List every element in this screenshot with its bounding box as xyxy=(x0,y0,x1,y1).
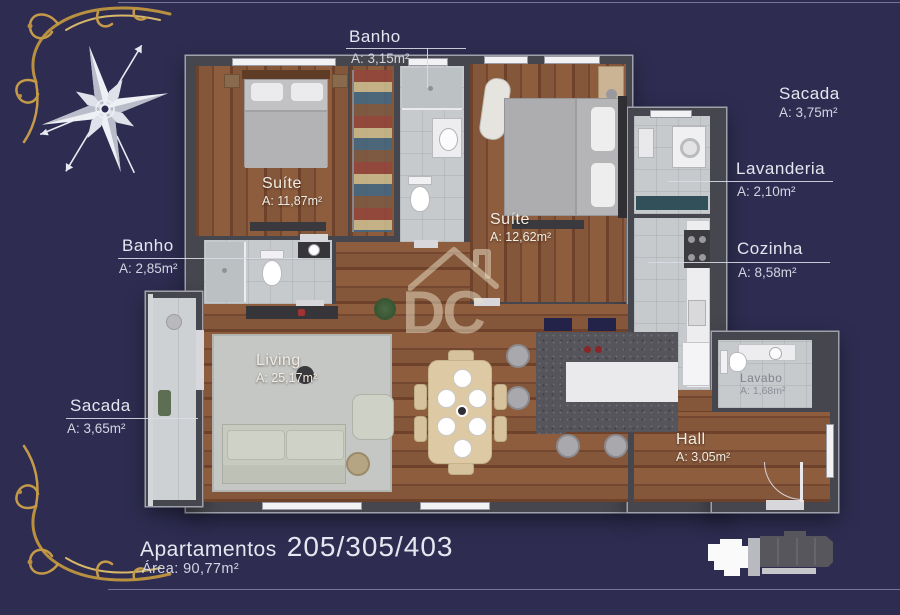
banho-top-sink-basin xyxy=(439,128,458,151)
living-sofa xyxy=(222,424,346,484)
living-tv-console xyxy=(246,306,338,319)
sofa-back xyxy=(223,465,345,483)
label-lavanderia-area: A: 2,10m² xyxy=(737,185,796,200)
entry-door-gap xyxy=(766,500,804,510)
label-hall-name: Hall xyxy=(676,432,730,449)
label-sacada-left-leader xyxy=(66,418,198,419)
sofa-cushion-2 xyxy=(286,430,344,460)
bottom-frame-line xyxy=(108,589,900,590)
label-lavanderia-leader xyxy=(668,181,833,182)
suite-1-pillow-left xyxy=(251,83,283,101)
watermark-text: DC xyxy=(402,278,483,347)
suite-1-bed-headboard xyxy=(242,70,330,79)
banho-left-basin xyxy=(308,244,320,256)
label-sacada-top: Sacada A: 3,75m² xyxy=(779,85,840,121)
lavanderia-washer-door xyxy=(680,138,700,158)
dining-chair-right-1 xyxy=(494,384,507,410)
lavabo-basin xyxy=(769,347,782,360)
label-suite-2: Suíte A: 12,62m² xyxy=(490,212,551,245)
banho-top-toilet-tank xyxy=(408,176,432,185)
footer-building-label: Apartamentos xyxy=(140,538,277,562)
balcony-planter xyxy=(158,390,171,416)
stove-burner-2 xyxy=(699,236,706,243)
kitchen-island-inner-counter xyxy=(566,362,678,402)
island-mat-1 xyxy=(544,318,572,331)
label-cozinha-leader xyxy=(648,262,830,263)
label-hall-area: A: 3,05m² xyxy=(676,451,730,465)
plate-4 xyxy=(437,417,456,436)
lavanderia-washer xyxy=(672,126,706,168)
label-sacada-top-name: Sacada xyxy=(779,85,840,103)
label-living-area: A: 25,17m² xyxy=(256,372,317,386)
center-bowl xyxy=(456,405,468,417)
floor-plan-canvas: DC Banho A: 3,15m² Sacada A: 3,75m² Lava… xyxy=(0,0,900,615)
label-sacada-left-name: Sacada xyxy=(70,397,131,415)
label-suite-1-name: Suíte xyxy=(262,176,322,193)
suite-2-bed-headboard xyxy=(618,96,627,218)
living-plant xyxy=(374,298,396,320)
label-banho-top: Banho xyxy=(349,28,401,46)
entry-door-leaf xyxy=(800,462,803,502)
hall-window xyxy=(826,424,834,478)
dining-chair-left-2 xyxy=(414,416,427,442)
label-lavabo-name: Lavabo xyxy=(740,372,786,385)
label-suite-2-name: Suíte xyxy=(490,212,551,229)
living-armchair xyxy=(352,394,394,440)
label-sacada-left-area: A: 3,65m² xyxy=(67,422,126,437)
bar-stool-2 xyxy=(506,386,530,410)
label-banho-left-name: Banho xyxy=(122,237,174,255)
suite-1-wardrobe xyxy=(352,70,392,232)
label-living-name: Living xyxy=(256,353,317,370)
stove-burner-4 xyxy=(699,254,706,261)
suite-1-nightstand-left xyxy=(224,74,240,88)
label-banho-top-leader-h xyxy=(346,48,466,49)
island-mat-2 xyxy=(588,318,616,331)
lavanderia-sink xyxy=(638,128,654,158)
top-frame-line xyxy=(118,2,900,3)
label-banho-left-leader xyxy=(118,258,302,259)
keyplan-building-icon xyxy=(700,528,844,586)
label-lavanderia-name: Lavanderia xyxy=(736,160,825,178)
plate-1 xyxy=(453,369,472,388)
label-banho-top-area: A: 3,15m² xyxy=(351,52,410,67)
footer-unit-numbers: 205/305/403 xyxy=(287,531,454,563)
stove-burner-1 xyxy=(688,236,695,243)
suite-1-tv-console xyxy=(250,222,326,231)
label-cozinha-area: A: 8,58m² xyxy=(738,266,797,281)
suite-2-pillow-top xyxy=(591,107,615,151)
stove-burner-3 xyxy=(688,254,695,261)
footer-total-area: Área: 90,77m² xyxy=(142,561,239,577)
lavanderia-window xyxy=(650,110,692,118)
label-suite-1-area: A: 11,87m² xyxy=(262,195,322,209)
balcony-table xyxy=(166,314,182,330)
plate-3 xyxy=(468,389,487,408)
cozinha-fridge xyxy=(682,342,710,386)
label-hall: Hall A: 3,05m² xyxy=(676,432,730,465)
label-banho-top-name: Banho xyxy=(349,28,401,46)
dining-chair-right-2 xyxy=(494,416,507,442)
label-suite-2-area: A: 12,62m² xyxy=(490,231,551,245)
suite-1-blanket xyxy=(245,110,327,168)
banho-left-shower-drain xyxy=(222,268,227,273)
banho-top-sink-counter xyxy=(432,118,462,158)
living-balcony-window xyxy=(420,502,490,510)
wine-bottle-1 xyxy=(584,346,591,353)
dc-house-logo-watermark: DC xyxy=(394,244,518,356)
suite-1-pillow-right xyxy=(291,83,323,101)
suite-2-bed xyxy=(504,98,620,216)
living-side-table xyxy=(346,452,370,476)
plate-5 xyxy=(468,417,487,436)
banho-left-toilet-bowl xyxy=(262,260,282,286)
label-banho-left-area: A: 2,85m² xyxy=(119,262,178,277)
label-banho-top-leader-v xyxy=(427,48,428,88)
banho-top-shower-drain xyxy=(428,86,433,91)
lavabo-toilet-tank xyxy=(720,350,728,374)
lavanderia-counter xyxy=(636,196,708,210)
label-lavabo: Lavabo A: 1,68m² xyxy=(740,372,786,397)
plate-2 xyxy=(437,389,456,408)
balcony-left-railing xyxy=(148,294,153,506)
balcony-left-door-gap xyxy=(196,330,204,390)
bar-stool-4 xyxy=(604,434,628,458)
footer-title-row: Apartamentos 205/305/403 xyxy=(140,531,453,563)
tv-console-decor xyxy=(298,309,305,316)
sofa-cushion-1 xyxy=(227,430,285,460)
suite-1-nightstand-right xyxy=(332,74,348,88)
label-suite-1: Suíte A: 11,87m² xyxy=(262,176,322,209)
bar-stool-3 xyxy=(556,434,580,458)
plate-6 xyxy=(453,439,472,458)
label-lavabo-area: A: 1,68m² xyxy=(740,386,786,398)
dining-chair-left-1 xyxy=(414,384,427,410)
cozinha-sink xyxy=(688,300,706,326)
label-sacada-top-area: A: 3,75m² xyxy=(779,106,840,121)
suite-2-window-2 xyxy=(544,56,600,64)
wine-bottle-2 xyxy=(595,346,602,353)
label-cozinha-name: Cozinha xyxy=(737,240,803,258)
banho-top-toilet-bowl xyxy=(410,186,430,212)
kitchen-island-bottom xyxy=(536,402,678,432)
suite-2-blanket-fold xyxy=(505,99,577,215)
suite-2-pillow-bottom xyxy=(591,163,615,207)
label-living: Living A: 25,17m² xyxy=(256,353,317,386)
dining-table xyxy=(428,360,492,464)
lavabo-toilet-bowl xyxy=(729,352,747,372)
suite-1-bed xyxy=(244,79,328,167)
suite-1-window xyxy=(232,58,336,66)
suite-2-window-1 xyxy=(484,56,528,64)
living-balcony-door xyxy=(262,502,362,510)
